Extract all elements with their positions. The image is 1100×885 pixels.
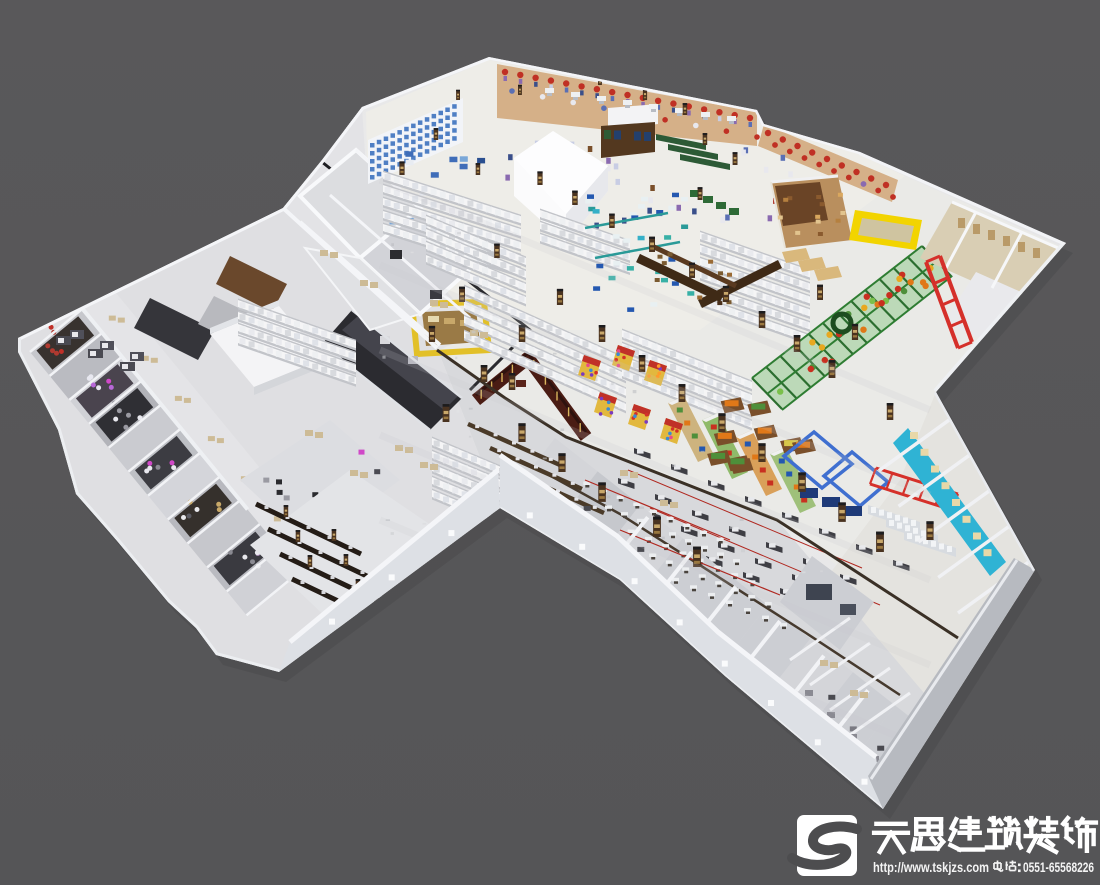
- svg-text:0551-65568226: 0551-65568226: [1023, 860, 1094, 875]
- svg-text:http://www.tskjzs.com: http://www.tskjzs.com: [873, 860, 989, 875]
